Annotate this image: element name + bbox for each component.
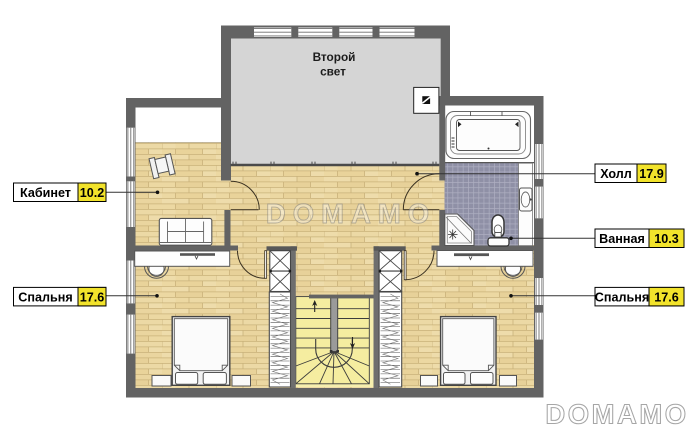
svg-text:DOMAMO: DOMAMO [266,198,436,229]
svg-text:Второй: Второй [313,50,356,64]
svg-text:17.9: 17.9 [639,167,664,181]
svg-text:Ванная: Ванная [599,232,645,246]
svg-text:Кабинет: Кабинет [20,186,71,200]
svg-text:10.2: 10.2 [80,186,105,200]
svg-text:17.6: 17.6 [80,291,105,305]
svg-text:Холл: Холл [600,167,632,181]
svg-text:Спальня: Спальня [18,291,72,305]
svg-text:17.6: 17.6 [654,291,679,305]
svg-text:Спальня: Спальня [595,291,649,305]
svg-text:10.3: 10.3 [654,232,679,246]
svg-text:DOMAMO: DOMAMO [545,399,688,430]
svg-text:свет: свет [320,65,346,79]
